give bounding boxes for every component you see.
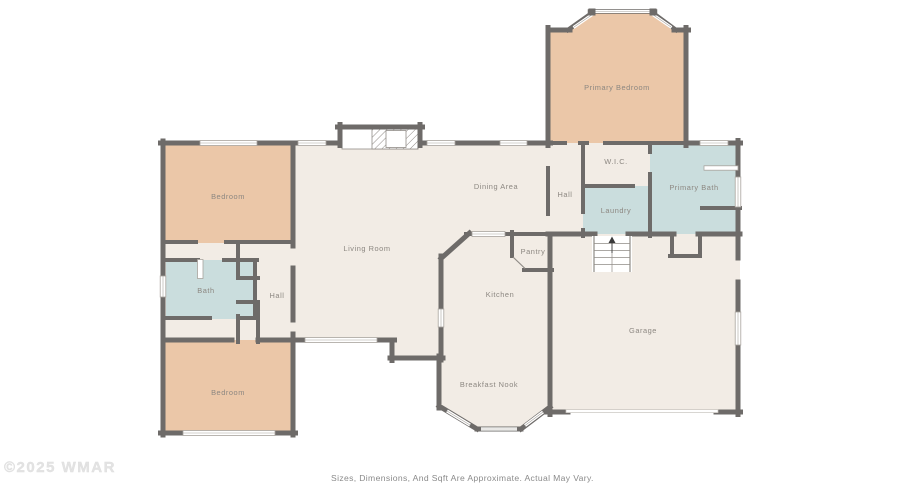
floor-plan-canvas: Primary Bedroom W.I.C. Primary Bath Hall…	[0, 0, 900, 500]
breakfast-nook-label: Breakfast Nook	[460, 380, 518, 389]
garage-door	[566, 410, 718, 413]
garage-label: Garage	[629, 326, 657, 335]
primary-bedroom-label: Primary Bedroom	[584, 83, 650, 92]
stairs	[592, 236, 632, 272]
laundry-label: Laundry	[601, 206, 632, 215]
floor-plan-drawing: Primary Bedroom W.I.C. Primary Bath Hall…	[0, 0, 900, 500]
bedroom-bottom-label: Bedroom	[211, 388, 245, 397]
bedroom-top-label: Bedroom	[211, 192, 245, 201]
wic-label: W.I.C.	[604, 157, 627, 166]
dining-area-label: Dining Area	[474, 182, 519, 191]
living-room-label: Living Room	[343, 244, 390, 253]
bath-door-leaf	[198, 260, 204, 279]
copyright-watermark: ©2025 WMAR	[4, 459, 116, 476]
bath-label: Bath	[197, 286, 214, 295]
bedroom-bottom-floor	[163, 340, 293, 434]
fireplace	[342, 127, 418, 149]
shower-glass	[704, 166, 738, 170]
hall-upper-label: Hall	[558, 190, 573, 199]
kitchen-label: Kitchen	[486, 290, 515, 299]
firebox	[386, 131, 406, 148]
disclaimer-text: Sizes, Dimensions, And Sqft Are Approxim…	[331, 473, 594, 483]
pantry-label: Pantry	[521, 247, 546, 256]
primary-bath-label: Primary Bath	[669, 183, 718, 192]
hall-left-label: Hall	[270, 291, 285, 300]
